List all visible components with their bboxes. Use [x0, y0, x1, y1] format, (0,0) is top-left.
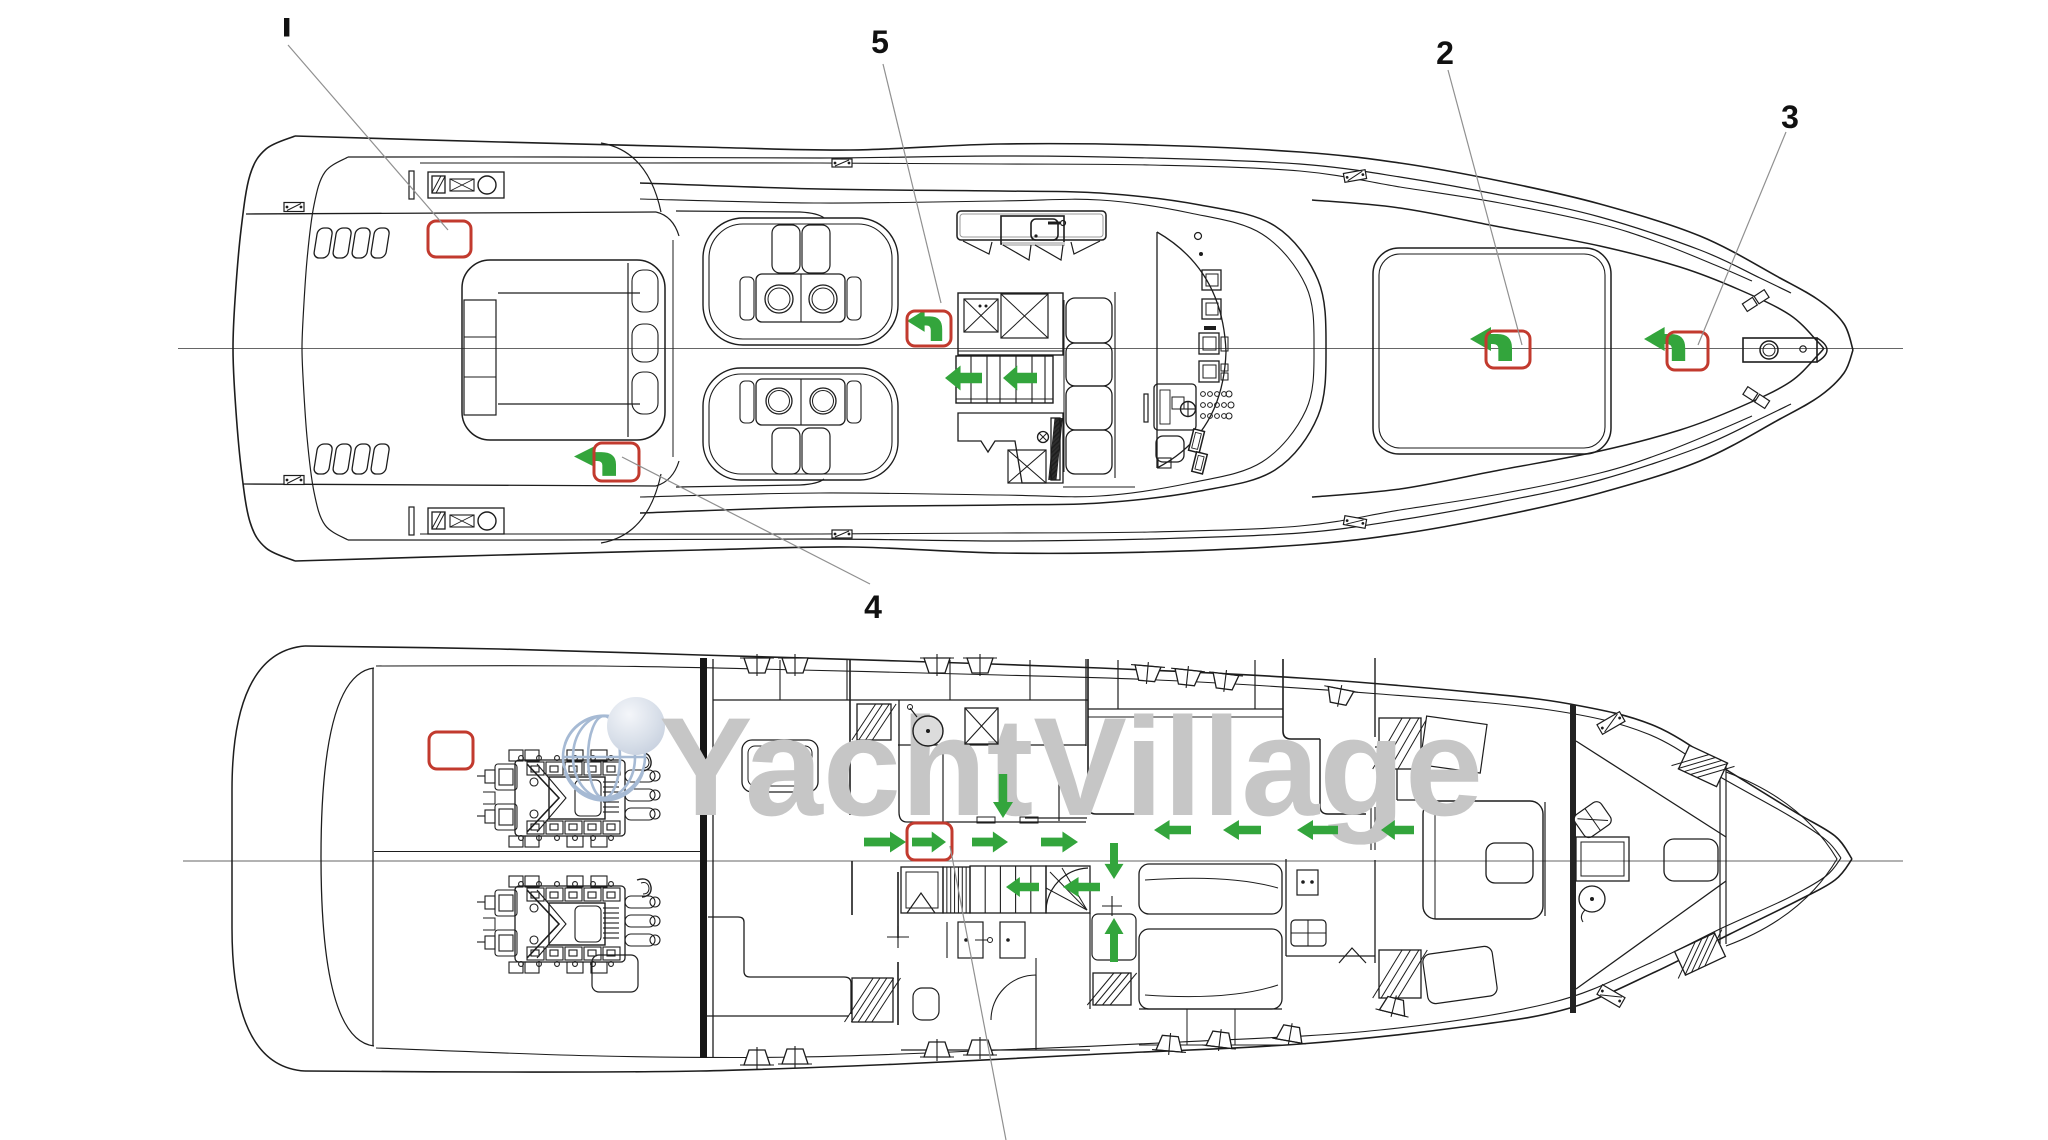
svg-text:4: 4: [864, 589, 882, 625]
svg-text:3: 3: [1781, 99, 1799, 135]
svg-text:YachtVillage: YachtVillage: [659, 688, 1483, 845]
svg-text:2: 2: [1436, 35, 1454, 71]
svg-text:5: 5: [871, 24, 889, 60]
